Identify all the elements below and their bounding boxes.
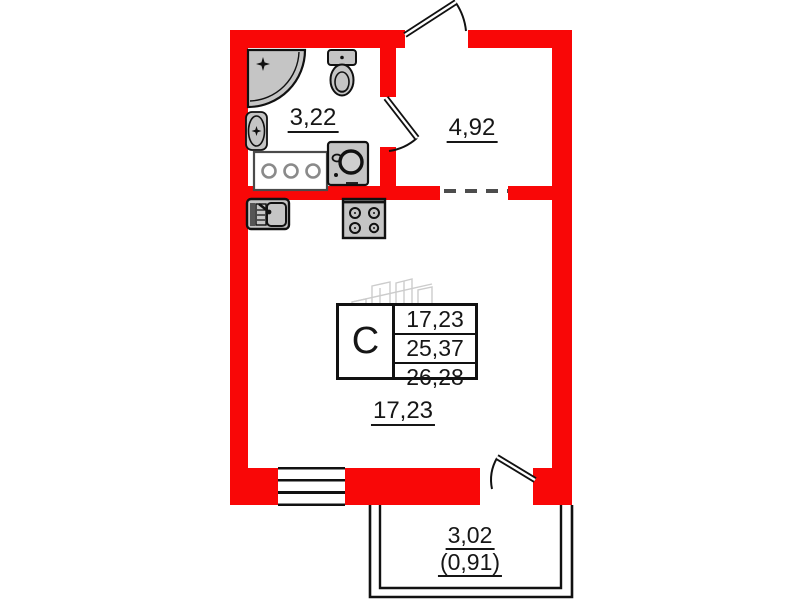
living-area-label: 17,23 [371,399,435,426]
bathroom-sink-icon [246,112,267,150]
toilet-icon [328,50,356,96]
wall-right [552,30,572,505]
unit-info-box: С 17,23 25,37 26,28 [336,303,478,380]
wall-hall-bottom-right [508,186,552,200]
balcony-door [491,457,535,489]
wall-bathroom-upper [380,48,396,97]
washing-machine-icon [328,142,368,185]
floor-plan: 3,22 4,92 17,23 3,02 (0,91) С 17,23 25,3… [0,0,800,600]
bathroom-area-label: 3,22 [288,106,339,133]
wall-bottom-right [533,468,572,505]
wall-top-left [230,30,405,48]
stove-icon [343,199,385,238]
kitchen-sink-icon [247,199,289,229]
unit-type-label: С [339,306,395,377]
wall-bottom-mid [345,468,480,505]
balcony-area-label: 3,02 [446,524,495,550]
bathroom-cabinet-icon [254,152,327,190]
plan-linework [0,0,800,600]
balcony-coefficient-label: (0,91) [438,551,502,577]
shower-icon [248,50,305,107]
unit-area-value: 25,37 [395,333,475,362]
wall-bathroom-bottom [248,186,440,200]
wall-left [230,30,248,505]
bathroom-door [386,98,417,151]
window-icon [278,467,345,506]
unit-living-area-value: 17,23 [395,306,475,333]
unit-info-rows: 17,23 25,37 26,28 [395,306,475,377]
entry-door [405,2,466,35]
hallway-area-label: 4,92 [447,116,498,143]
unit-total-area-value: 26,28 [395,362,475,391]
opening-dashed-line [444,189,508,193]
wall-bottom-corner [230,468,278,505]
